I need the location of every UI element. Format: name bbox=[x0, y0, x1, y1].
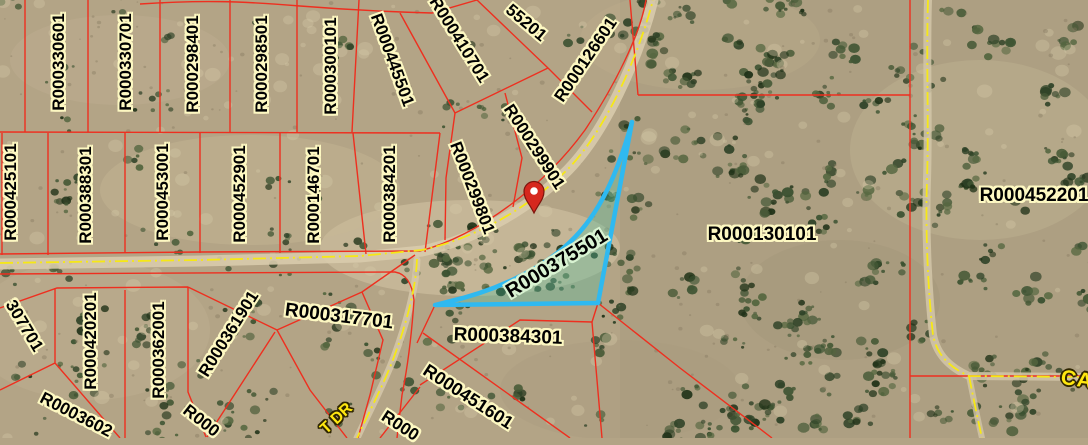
map-viewport[interactable]: { "map": { "highlighted_parcel": "R00037… bbox=[0, 0, 1088, 438]
map-canvas[interactable] bbox=[0, 0, 1088, 438]
